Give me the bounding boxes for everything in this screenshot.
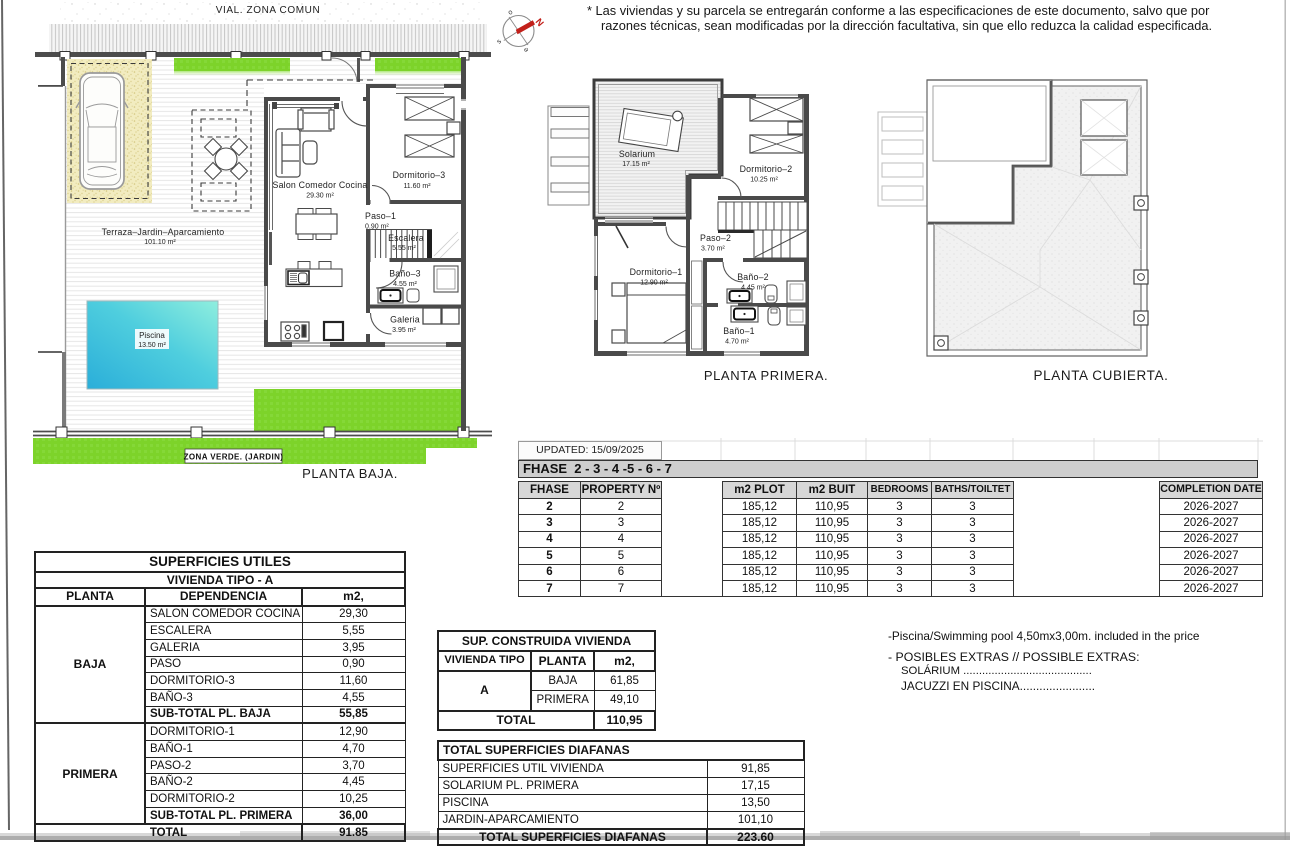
svg-text:Piscina: Piscina bbox=[139, 331, 165, 340]
svg-text:17.15 m²: 17.15 m² bbox=[622, 161, 650, 168]
svg-text:Dormitorio–1: Dormitorio–1 bbox=[630, 267, 683, 277]
svg-text:Paso–1: Paso–1 bbox=[365, 211, 396, 221]
svg-text:Baño–3: Baño–3 bbox=[389, 269, 421, 279]
svg-text:Dormitorio–3: Dormitorio–3 bbox=[393, 170, 446, 180]
svg-text:11.60 m²: 11.60 m² bbox=[403, 183, 431, 190]
svg-text:o: o bbox=[507, 9, 515, 17]
svg-text:e: e bbox=[522, 46, 530, 53]
svg-text:Dormitorio–2: Dormitorio–2 bbox=[740, 164, 793, 174]
svg-text:VIAL. ZONA COMUN: VIAL. ZONA COMUN bbox=[216, 5, 321, 16]
svg-text:s: s bbox=[496, 38, 504, 46]
svg-text:Escalera: Escalera bbox=[388, 233, 424, 243]
svg-text:Baño–1: Baño–1 bbox=[723, 326, 755, 336]
svg-text:101.10 m²: 101.10 m² bbox=[144, 239, 176, 246]
svg-text:3.70 m²: 3.70 m² bbox=[701, 246, 725, 253]
svg-text:12.90 m²: 12.90 m² bbox=[640, 280, 668, 287]
svg-text:Galeria: Galeria bbox=[390, 315, 420, 325]
svg-text:Solarium: Solarium bbox=[619, 149, 655, 159]
svg-text:4.55 m²: 4.55 m² bbox=[393, 281, 417, 288]
svg-text:Salon Comedor Cocina: Salon Comedor Cocina bbox=[273, 180, 368, 190]
svg-text:ZONA VERDE. (JARDIN): ZONA VERDE. (JARDIN) bbox=[184, 453, 284, 462]
svg-text:Baño–2: Baño–2 bbox=[737, 272, 769, 282]
svg-text:Terraza–Jardin–Aparcamiento: Terraza–Jardin–Aparcamiento bbox=[102, 227, 225, 237]
svg-text:N: N bbox=[533, 17, 546, 29]
svg-text:10.25 m²: 10.25 m² bbox=[750, 177, 778, 184]
svg-text:13.50 m²: 13.50 m² bbox=[138, 342, 166, 349]
svg-text:3.95 m²: 3.95 m² bbox=[392, 327, 416, 334]
svg-text:4.70 m²: 4.70 m² bbox=[725, 339, 749, 346]
svg-text:PLANTA PRIMERA.: PLANTA PRIMERA. bbox=[704, 368, 828, 383]
svg-text:29.30 m²: 29.30 m² bbox=[306, 193, 334, 200]
svg-text:PLANTA BAJA.: PLANTA BAJA. bbox=[302, 466, 398, 481]
svg-text:Paso–2: Paso–2 bbox=[700, 233, 731, 243]
svg-text:PLANTA CUBIERTA.: PLANTA CUBIERTA. bbox=[1034, 368, 1169, 383]
svg-text:5.55 m²: 5.55 m² bbox=[392, 245, 416, 252]
